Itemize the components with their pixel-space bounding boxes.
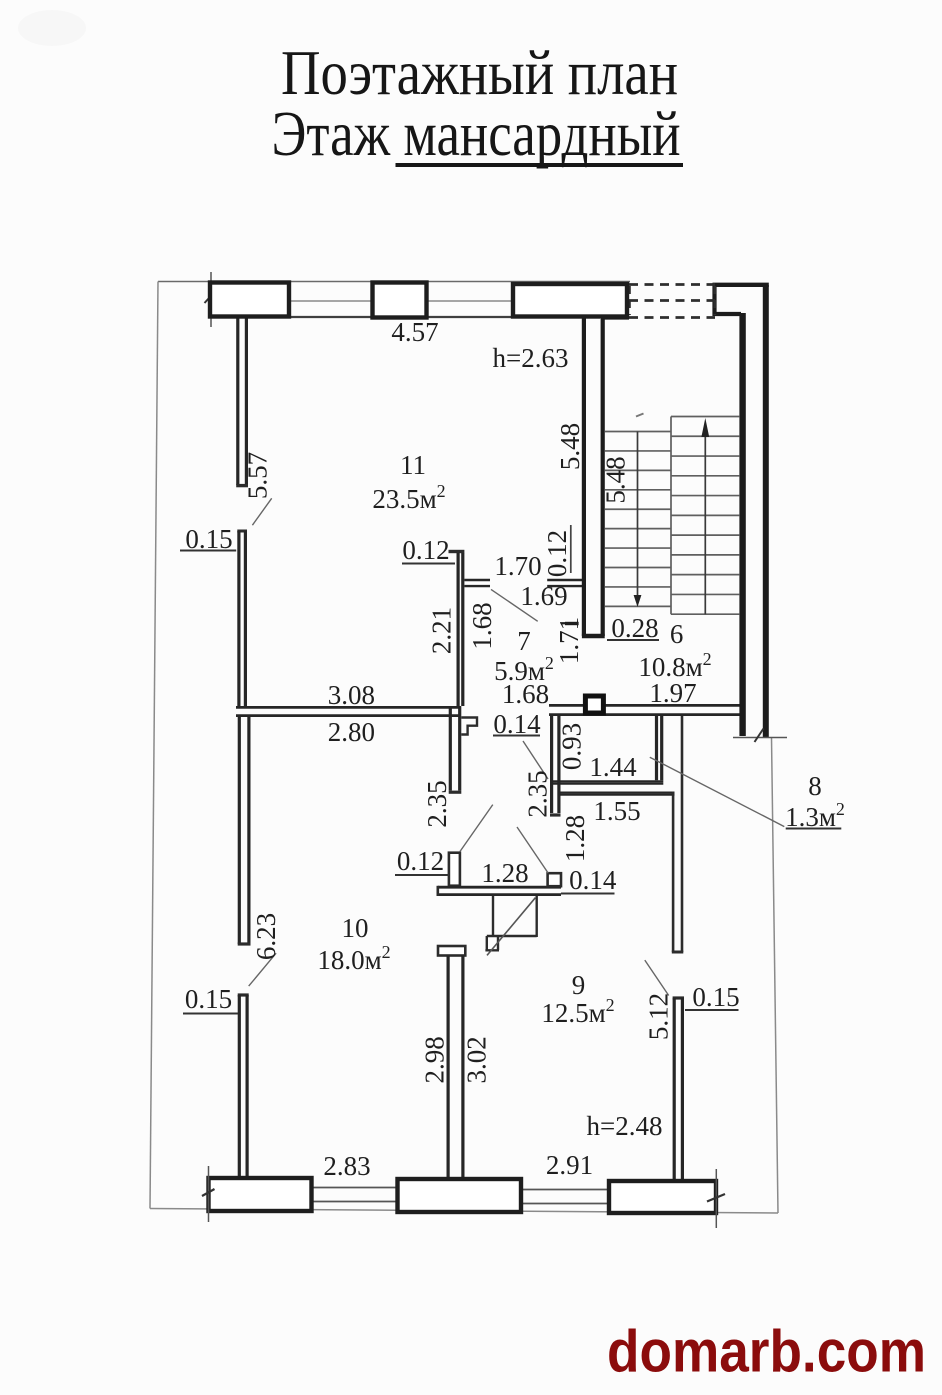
svg-text:0.12: 0.12	[542, 530, 572, 577]
svg-text:18.0м2: 18.0м2	[317, 942, 390, 975]
svg-text:0.93: 0.93	[557, 723, 587, 770]
svg-text:1.97: 1.97	[649, 678, 696, 708]
svg-text:5.48: 5.48	[601, 456, 631, 503]
svg-text:5.57: 5.57	[243, 452, 273, 499]
svg-text:Этаж мансардный: Этаж мансардный	[272, 98, 681, 169]
svg-text:6: 6	[670, 619, 684, 649]
svg-text:1.69: 1.69	[520, 581, 567, 611]
svg-text:4.57: 4.57	[391, 317, 438, 347]
svg-text:h=2.48: h=2.48	[587, 1111, 663, 1141]
svg-text:1.55: 1.55	[593, 796, 640, 826]
svg-text:0.14: 0.14	[569, 865, 617, 895]
svg-text:1.68: 1.68	[467, 602, 497, 649]
svg-text:0.15: 0.15	[185, 984, 232, 1014]
svg-text:domarb.com: domarb.com	[607, 1319, 926, 1385]
svg-text:1.28: 1.28	[481, 858, 528, 888]
svg-text:2.35: 2.35	[422, 780, 452, 827]
svg-text:0.12: 0.12	[402, 535, 449, 565]
svg-text:8: 8	[808, 771, 822, 801]
svg-text:3.02: 3.02	[462, 1036, 492, 1083]
svg-text:2.91: 2.91	[546, 1150, 593, 1180]
svg-text:12.5м2: 12.5м2	[541, 995, 614, 1028]
svg-text:2.35: 2.35	[523, 770, 553, 817]
svg-text:10: 10	[342, 913, 369, 943]
svg-text:3.08: 3.08	[328, 680, 375, 710]
svg-text:1.44: 1.44	[589, 752, 637, 782]
svg-text:2.80: 2.80	[328, 717, 375, 747]
svg-text:6.23: 6.23	[251, 913, 281, 960]
svg-text:7: 7	[517, 626, 531, 656]
svg-text:5.12: 5.12	[643, 993, 673, 1040]
svg-text:9: 9	[572, 970, 586, 1000]
svg-text:0.15: 0.15	[692, 982, 739, 1012]
svg-text:11: 11	[400, 450, 426, 480]
svg-text:h=2.63: h=2.63	[493, 343, 569, 373]
svg-text:5.48: 5.48	[555, 423, 585, 470]
svg-text:1.28: 1.28	[560, 815, 590, 862]
svg-text:2.98: 2.98	[419, 1036, 449, 1083]
svg-text:2.21: 2.21	[427, 607, 457, 654]
svg-text:1.68: 1.68	[502, 679, 549, 709]
svg-text:2.83: 2.83	[323, 1151, 370, 1181]
svg-text:0.28: 0.28	[611, 613, 658, 643]
svg-text:0.12: 0.12	[397, 846, 444, 876]
svg-text:1.70: 1.70	[494, 551, 541, 581]
svg-text:23.5м2: 23.5м2	[372, 481, 445, 514]
svg-text:1.71: 1.71	[554, 617, 584, 664]
